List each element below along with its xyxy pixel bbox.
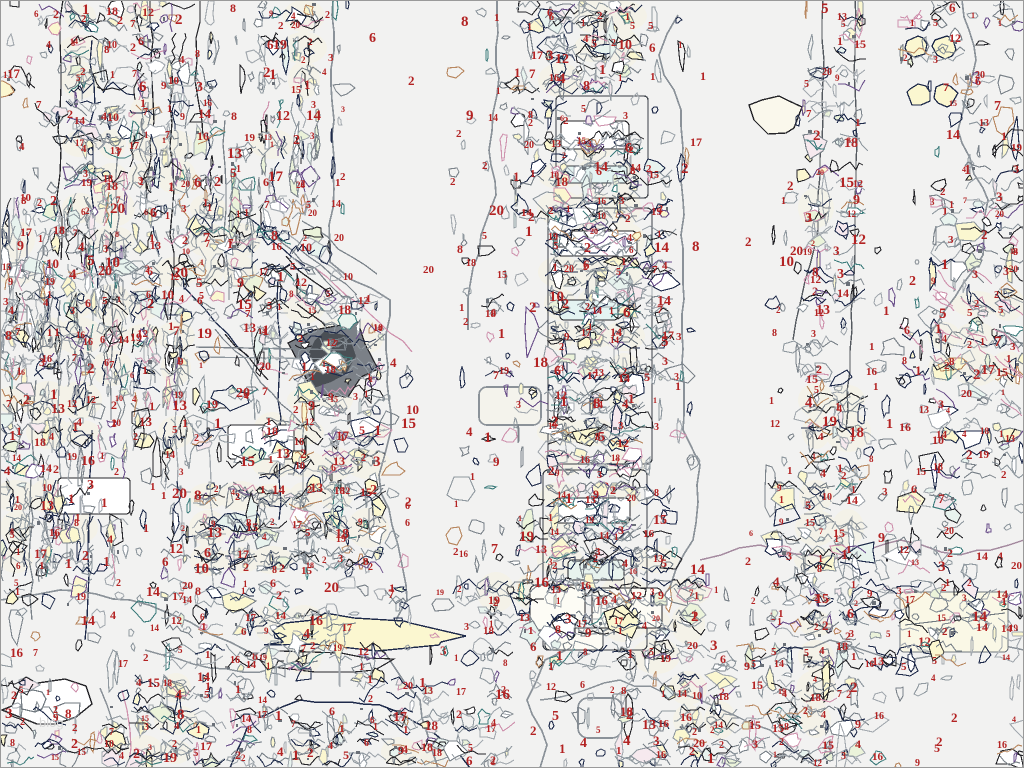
svg-text:3: 3	[587, 139, 592, 149]
svg-text:4: 4	[583, 33, 589, 45]
svg-text:19: 19	[499, 366, 509, 377]
svg-text:10: 10	[618, 38, 632, 53]
svg-text:6: 6	[34, 9, 39, 19]
svg-text:1: 1	[769, 396, 774, 407]
svg-text:18: 18	[810, 692, 822, 704]
svg-text:1: 1	[616, 745, 622, 757]
svg-text:6: 6	[466, 753, 473, 768]
svg-text:15: 15	[51, 753, 59, 762]
svg-text:3: 3	[623, 111, 628, 122]
svg-text:1: 1	[161, 490, 167, 502]
svg-text:2: 2	[368, 694, 373, 705]
svg-text:8: 8	[902, 356, 907, 367]
svg-text:2: 2	[361, 453, 366, 464]
svg-text:17: 17	[905, 595, 915, 606]
svg-text:4: 4	[622, 396, 629, 411]
svg-text:20: 20	[995, 209, 1005, 219]
svg-text:7: 7	[15, 326, 21, 338]
svg-text:16: 16	[459, 549, 469, 559]
svg-text:3: 3	[179, 467, 184, 477]
svg-text:1: 1	[627, 646, 634, 661]
svg-text:6: 6	[150, 206, 157, 221]
svg-text:13: 13	[172, 398, 187, 414]
svg-text:2: 2	[72, 722, 78, 734]
svg-text:3: 3	[619, 195, 625, 207]
svg-text:12: 12	[949, 31, 961, 45]
svg-text:15: 15	[360, 485, 372, 499]
svg-text:1: 1	[998, 19, 1002, 28]
svg-text:4: 4	[623, 733, 631, 749]
svg-text:19: 19	[244, 132, 256, 144]
svg-text:12: 12	[555, 52, 569, 67]
svg-text:5: 5	[616, 267, 621, 278]
svg-text:4: 4	[662, 260, 668, 272]
svg-text:2: 2	[942, 626, 948, 638]
svg-text:5: 5	[230, 165, 237, 180]
svg-text:17: 17	[20, 225, 32, 239]
svg-text:2: 2	[53, 462, 59, 476]
svg-text:2: 2	[813, 128, 821, 144]
svg-text:10: 10	[597, 211, 607, 221]
svg-text:4: 4	[622, 556, 628, 570]
svg-text:4: 4	[291, 11, 296, 21]
svg-text:1: 1	[301, 359, 308, 374]
svg-text:4: 4	[132, 394, 137, 404]
svg-text:14: 14	[657, 294, 671, 309]
svg-text:9: 9	[878, 531, 885, 546]
svg-text:3: 3	[972, 267, 978, 281]
svg-text:10: 10	[182, 247, 190, 256]
svg-text:19: 19	[67, 452, 77, 463]
svg-text:12: 12	[276, 109, 290, 124]
svg-text:2: 2	[147, 297, 154, 312]
svg-text:6: 6	[904, 323, 910, 337]
svg-text:13: 13	[227, 146, 242, 162]
svg-text:2: 2	[53, 7, 59, 21]
svg-text:7: 7	[73, 228, 78, 238]
svg-text:7: 7	[819, 527, 823, 536]
svg-text:14: 14	[306, 108, 322, 124]
svg-text:9: 9	[555, 468, 560, 478]
svg-text:18: 18	[844, 136, 858, 151]
svg-text:18: 18	[620, 704, 634, 719]
svg-text:18: 18	[836, 639, 848, 653]
svg-text:9: 9	[466, 108, 474, 124]
svg-text:12: 12	[851, 232, 866, 248]
svg-text:1: 1	[614, 532, 619, 542]
svg-text:1: 1	[628, 391, 635, 406]
svg-text:12: 12	[810, 274, 822, 286]
svg-text:14: 14	[592, 399, 604, 411]
svg-text:10: 10	[42, 483, 52, 494]
svg-text:1: 1	[565, 491, 573, 507]
svg-text:8: 8	[457, 242, 463, 256]
svg-text:3: 3	[310, 131, 315, 141]
svg-text:7: 7	[689, 588, 694, 598]
svg-text:1: 1	[835, 401, 841, 413]
svg-text:3: 3	[373, 454, 381, 470]
svg-text:13: 13	[551, 139, 561, 150]
svg-text:13: 13	[911, 558, 919, 567]
svg-text:3: 3	[548, 557, 553, 567]
svg-text:2: 2	[646, 163, 652, 175]
svg-text:3: 3	[650, 587, 655, 597]
svg-text:20: 20	[236, 386, 250, 401]
svg-text:6: 6	[911, 482, 917, 496]
svg-text:1: 1	[883, 303, 890, 318]
svg-text:17: 17	[237, 547, 249, 561]
svg-text:9: 9	[853, 193, 860, 208]
svg-text:5: 5	[805, 498, 811, 512]
svg-text:2: 2	[967, 340, 972, 351]
svg-text:1: 1	[47, 290, 52, 301]
svg-text:2: 2	[87, 361, 95, 377]
svg-text:3: 3	[341, 105, 345, 114]
svg-text:2: 2	[776, 305, 781, 315]
svg-text:4: 4	[805, 395, 813, 411]
svg-text:14: 14	[714, 720, 724, 730]
svg-text:10: 10	[300, 240, 312, 254]
svg-text:5: 5	[196, 275, 203, 290]
svg-text:1: 1	[1006, 353, 1012, 365]
svg-text:9: 9	[8, 277, 13, 288]
svg-text:8: 8	[621, 685, 627, 697]
svg-text:1: 1	[518, 514, 522, 523]
svg-text:12: 12	[813, 758, 823, 768]
svg-text:1: 1	[68, 491, 75, 506]
svg-text:19: 19	[519, 529, 534, 545]
svg-text:3: 3	[841, 751, 846, 762]
svg-text:17: 17	[200, 739, 212, 753]
svg-text:1: 1	[873, 381, 879, 393]
svg-text:5: 5	[178, 645, 183, 655]
svg-text:1: 1	[165, 211, 170, 222]
svg-text:1: 1	[335, 177, 341, 189]
svg-text:2: 2	[463, 316, 469, 328]
svg-text:3: 3	[674, 372, 679, 383]
svg-text:2: 2	[822, 618, 829, 633]
svg-text:2: 2	[182, 233, 188, 247]
svg-text:1: 1	[214, 416, 222, 432]
svg-text:6: 6	[370, 715, 375, 725]
svg-text:2: 2	[307, 745, 314, 760]
svg-text:18: 18	[466, 258, 476, 269]
svg-text:3: 3	[103, 244, 108, 255]
svg-text:2: 2	[450, 176, 456, 188]
svg-text:5: 5	[267, 301, 272, 312]
svg-text:9: 9	[855, 717, 861, 731]
svg-text:5: 5	[804, 79, 809, 90]
svg-text:12: 12	[814, 308, 824, 319]
svg-text:16: 16	[866, 366, 878, 378]
svg-text:4: 4	[818, 431, 824, 443]
svg-text:2: 2	[585, 302, 590, 313]
svg-text:7: 7	[837, 689, 842, 700]
svg-text:17: 17	[7, 66, 21, 81]
svg-text:20: 20	[489, 203, 504, 219]
svg-text:1: 1	[936, 464, 942, 476]
svg-text:3: 3	[338, 554, 343, 565]
svg-text:1: 1	[277, 302, 282, 312]
svg-text:2: 2	[745, 554, 751, 568]
svg-text:14: 14	[837, 286, 849, 300]
svg-text:1: 1	[270, 140, 274, 149]
svg-text:4: 4	[402, 742, 408, 756]
svg-text:2: 2	[235, 492, 240, 503]
svg-text:4: 4	[8, 303, 14, 317]
svg-text:20: 20	[961, 388, 973, 400]
svg-text:1: 1	[525, 224, 533, 240]
svg-text:1: 1	[359, 662, 364, 673]
svg-text:16: 16	[872, 751, 884, 763]
svg-text:1: 1	[910, 18, 915, 28]
svg-text:8: 8	[71, 39, 75, 48]
svg-text:20: 20	[181, 179, 191, 189]
svg-text:2: 2	[243, 560, 249, 574]
svg-text:6: 6	[549, 12, 554, 23]
svg-text:7: 7	[938, 491, 945, 506]
svg-text:2: 2	[944, 360, 950, 372]
svg-text:1: 1	[38, 234, 43, 245]
svg-text:17: 17	[268, 169, 284, 185]
svg-text:1: 1	[389, 581, 395, 595]
svg-text:20: 20	[112, 418, 122, 428]
svg-text:3: 3	[786, 549, 792, 563]
svg-text:14: 14	[258, 695, 268, 705]
svg-text:2: 2	[301, 55, 306, 65]
svg-text:3: 3	[1013, 162, 1019, 176]
svg-text:15: 15	[77, 747, 87, 757]
svg-text:9: 9	[161, 80, 167, 92]
svg-text:4: 4	[580, 736, 587, 751]
svg-text:3: 3	[849, 629, 854, 640]
svg-text:5: 5	[649, 647, 654, 658]
svg-text:5: 5	[172, 424, 178, 436]
svg-text:2: 2	[552, 560, 558, 572]
svg-text:7: 7	[994, 334, 1002, 350]
svg-text:9: 9	[493, 454, 500, 469]
svg-text:20: 20	[291, 20, 301, 30]
svg-text:1: 1	[964, 163, 971, 178]
svg-text:15: 15	[246, 520, 258, 534]
svg-text:1: 1	[1001, 388, 1005, 397]
svg-text:12: 12	[358, 646, 370, 658]
svg-text:1: 1	[182, 416, 188, 430]
svg-text:1: 1	[205, 649, 211, 661]
svg-text:20: 20	[403, 681, 413, 692]
svg-text:1: 1	[661, 689, 666, 699]
svg-text:2: 2	[903, 53, 908, 63]
svg-text:9: 9	[178, 356, 184, 368]
svg-text:5: 5	[771, 646, 777, 658]
svg-text:9: 9	[867, 588, 873, 600]
svg-text:2: 2	[482, 160, 488, 172]
svg-text:10: 10	[104, 739, 114, 750]
svg-text:12: 12	[86, 395, 96, 406]
svg-text:1: 1	[496, 86, 501, 96]
svg-text:7: 7	[291, 719, 296, 729]
svg-text:1: 1	[618, 73, 623, 83]
svg-text:1: 1	[625, 12, 630, 23]
svg-text:16: 16	[874, 711, 884, 722]
svg-text:1: 1	[907, 629, 912, 639]
svg-text:19: 19	[660, 653, 672, 665]
svg-text:17: 17	[456, 687, 466, 698]
svg-text:2: 2	[691, 609, 699, 625]
svg-text:20: 20	[110, 201, 125, 217]
svg-text:3: 3	[752, 737, 758, 751]
svg-text:4: 4	[119, 751, 124, 762]
svg-text:1: 1	[364, 389, 369, 399]
svg-text:5: 5	[87, 253, 95, 269]
svg-text:7: 7	[165, 130, 170, 141]
svg-text:4: 4	[110, 608, 116, 622]
svg-text:20: 20	[182, 580, 194, 592]
svg-text:3: 3	[930, 197, 935, 207]
svg-text:6: 6	[130, 371, 134, 380]
svg-text:2: 2	[562, 297, 569, 312]
svg-text:8: 8	[583, 79, 590, 94]
svg-text:14: 14	[331, 199, 341, 210]
svg-text:6: 6	[583, 257, 590, 272]
svg-text:3: 3	[948, 234, 954, 246]
svg-text:2: 2	[241, 753, 246, 763]
svg-text:2: 2	[293, 133, 300, 148]
svg-text:5: 5	[932, 656, 937, 667]
svg-text:2: 2	[130, 40, 136, 54]
svg-text:2: 2	[276, 588, 282, 602]
svg-text:14: 14	[610, 325, 622, 339]
svg-text:10: 10	[161, 287, 174, 302]
svg-text:4: 4	[390, 355, 397, 370]
svg-text:20: 20	[564, 264, 574, 275]
svg-text:12: 12	[170, 272, 180, 282]
svg-text:13: 13	[642, 718, 656, 733]
svg-text:2: 2	[67, 107, 73, 121]
svg-text:2: 2	[719, 740, 724, 751]
svg-text:1: 1	[72, 419, 79, 434]
svg-text:14: 14	[976, 549, 988, 563]
svg-text:20: 20	[1011, 560, 1023, 572]
svg-text:1: 1	[117, 295, 121, 304]
svg-text:14: 14	[246, 660, 256, 671]
svg-text:2: 2	[133, 747, 140, 762]
svg-text:9: 9	[915, 758, 920, 768]
svg-text:2: 2	[456, 707, 462, 721]
svg-text:13: 13	[243, 320, 257, 335]
svg-text:16: 16	[197, 129, 209, 143]
svg-text:4: 4	[813, 675, 817, 684]
svg-text:1: 1	[459, 302, 465, 314]
svg-text:7: 7	[33, 648, 38, 659]
svg-text:1: 1	[340, 433, 345, 444]
svg-text:16: 16	[656, 750, 666, 761]
svg-text:1: 1	[260, 484, 266, 496]
svg-text:12: 12	[137, 328, 149, 340]
svg-text:13: 13	[207, 525, 222, 541]
svg-text:14: 14	[241, 714, 251, 725]
svg-text:2: 2	[909, 274, 916, 289]
svg-text:2: 2	[368, 562, 373, 573]
svg-text:2: 2	[981, 227, 988, 242]
svg-text:5: 5	[552, 709, 559, 724]
svg-text:19: 19	[548, 232, 558, 243]
svg-text:8: 8	[194, 488, 202, 504]
svg-text:3: 3	[833, 243, 840, 258]
svg-text:13: 13	[519, 612, 531, 624]
svg-text:19: 19	[197, 326, 212, 342]
svg-text:5: 5	[596, 725, 601, 735]
svg-text:6: 6	[405, 518, 410, 529]
svg-text:20: 20	[975, 70, 985, 81]
svg-text:1: 1	[15, 495, 20, 506]
svg-text:20: 20	[693, 736, 705, 750]
svg-text:1: 1	[700, 69, 706, 83]
svg-text:9: 9	[585, 625, 592, 640]
svg-text:6: 6	[749, 529, 753, 538]
svg-text:15: 15	[839, 175, 854, 191]
svg-text:3: 3	[83, 169, 88, 180]
svg-text:6: 6	[623, 305, 631, 321]
svg-text:18: 18	[980, 426, 990, 436]
svg-text:1: 1	[915, 363, 922, 378]
svg-text:10: 10	[107, 110, 119, 124]
svg-text:7: 7	[615, 457, 620, 467]
svg-text:7: 7	[943, 80, 949, 94]
svg-text:18: 18	[533, 355, 548, 371]
svg-text:1: 1	[552, 260, 558, 274]
svg-text:2: 2	[622, 367, 627, 378]
svg-text:1: 1	[498, 327, 505, 342]
svg-text:6: 6	[241, 626, 247, 638]
svg-text:14: 14	[690, 562, 706, 578]
svg-text:1: 1	[454, 499, 459, 509]
svg-text:2: 2	[530, 723, 537, 738]
svg-text:3: 3	[662, 354, 668, 368]
svg-text:1: 1	[196, 725, 201, 736]
svg-text:5: 5	[306, 200, 311, 211]
svg-text:2: 2	[20, 717, 25, 728]
svg-text:14: 14	[118, 334, 130, 346]
svg-text:2: 2	[114, 467, 119, 478]
svg-text:6: 6	[204, 546, 211, 561]
svg-text:5: 5	[901, 661, 907, 673]
svg-text:4: 4	[819, 645, 825, 657]
svg-text:17: 17	[34, 546, 48, 561]
svg-text:2: 2	[611, 38, 616, 49]
svg-text:1: 1	[773, 750, 777, 759]
svg-text:1: 1	[310, 372, 315, 383]
svg-text:1: 1	[339, 723, 345, 735]
svg-text:16: 16	[629, 567, 637, 576]
svg-text:10: 10	[932, 433, 944, 447]
svg-text:1: 1	[201, 621, 207, 633]
svg-text:1: 1	[454, 653, 459, 663]
svg-text:8: 8	[272, 565, 277, 576]
svg-text:2: 2	[1001, 469, 1007, 481]
svg-text:15: 15	[854, 37, 866, 51]
svg-text:2: 2	[37, 198, 42, 209]
svg-text:4: 4	[946, 406, 950, 415]
svg-text:blog: blog	[39, 715, 64, 730]
svg-text:1: 1	[200, 258, 204, 267]
svg-text:5: 5	[648, 20, 654, 32]
svg-text:2: 2	[625, 213, 631, 225]
svg-text:4: 4	[642, 621, 647, 632]
svg-text:7: 7	[109, 727, 114, 738]
svg-text:2: 2	[85, 206, 90, 216]
svg-text:1: 1	[513, 169, 520, 184]
